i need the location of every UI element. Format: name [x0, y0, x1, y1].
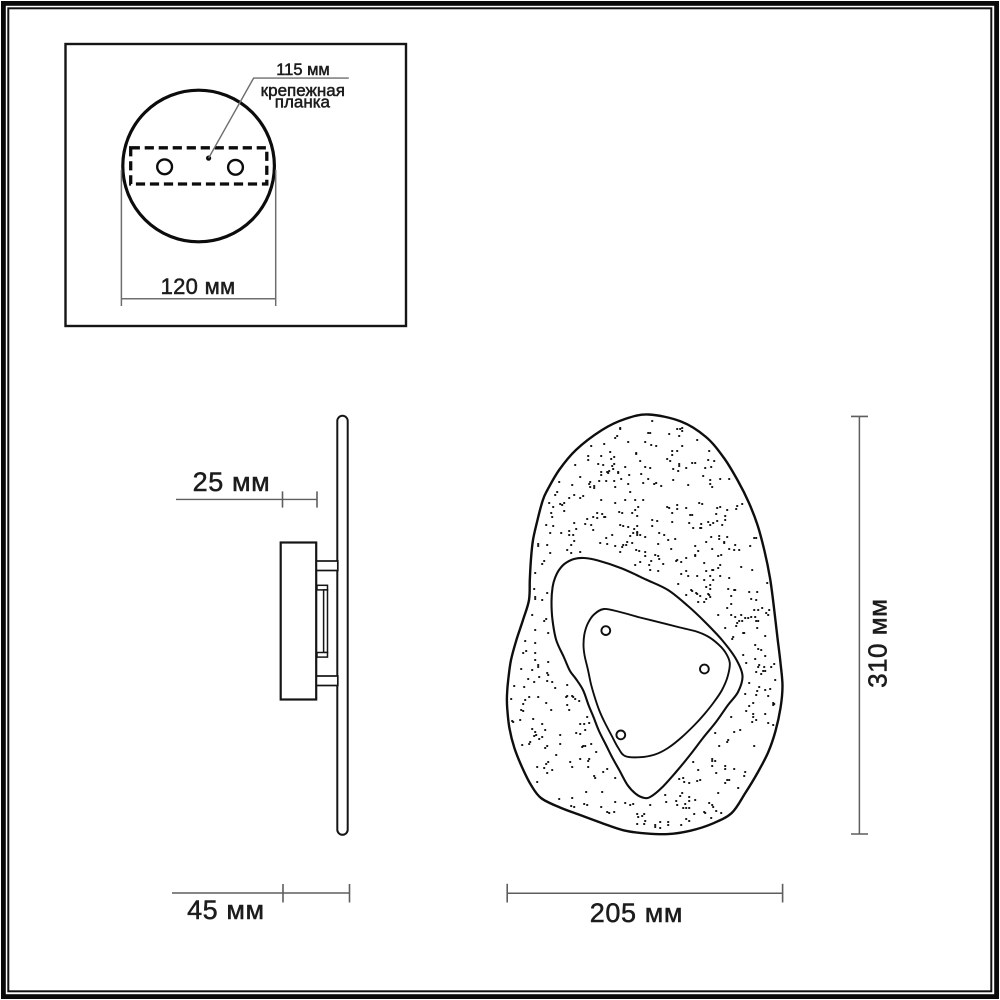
- svg-text:25 мм: 25 мм: [193, 467, 271, 497]
- svg-text:планка: планка: [275, 93, 331, 112]
- svg-text:45 мм: 45 мм: [187, 895, 265, 925]
- svg-text:115 мм: 115 мм: [276, 61, 330, 79]
- svg-text:310 мм: 310 мм: [863, 599, 893, 688]
- svg-text:205 мм: 205 мм: [590, 898, 683, 928]
- svg-text:120 мм: 120 мм: [161, 274, 236, 299]
